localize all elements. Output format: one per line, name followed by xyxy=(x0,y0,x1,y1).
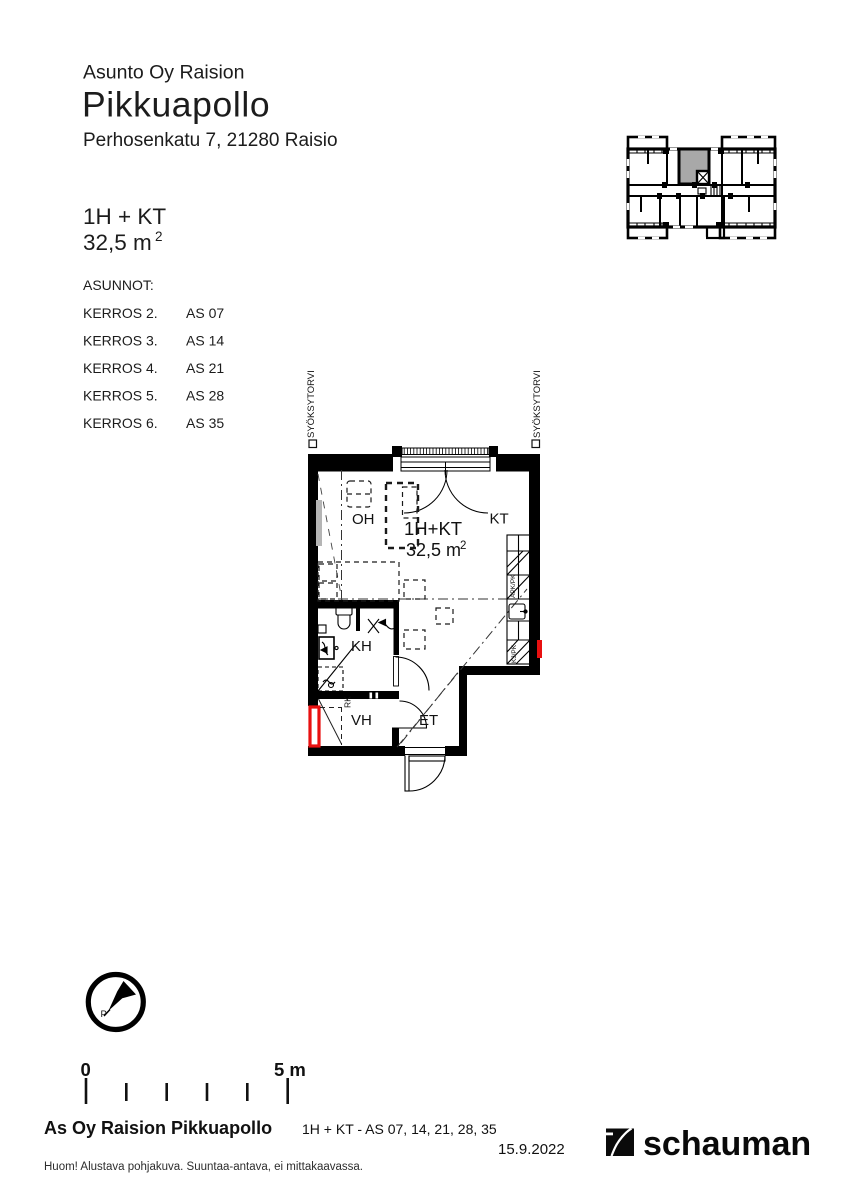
svg-text:OH: OH xyxy=(352,511,375,528)
svg-text:AS 14: AS 14 xyxy=(186,333,224,349)
svg-text:SYÖKSYTORVI: SYÖKSYTORVI xyxy=(306,370,317,438)
svg-text:32,5 m: 32,5 m xyxy=(406,540,461,560)
svg-text:AS 21: AS 21 xyxy=(186,360,224,376)
svg-text:KERROS 2.: KERROS 2. xyxy=(83,305,158,321)
svg-text:5 m: 5 m xyxy=(274,1059,306,1080)
svg-text:Perhosenkatu 7, 21280 Raisio: Perhosenkatu 7, 21280 Raisio xyxy=(83,130,338,151)
svg-text:0: 0 xyxy=(81,1059,91,1080)
svg-text:ASUNNOT:: ASUNNOT: xyxy=(83,277,154,293)
svg-text:KERROS 4.: KERROS 4. xyxy=(83,360,158,376)
svg-text:2: 2 xyxy=(460,540,466,552)
svg-text:32,5 m: 32,5 m xyxy=(83,230,152,255)
svg-text:KJ/PK: KJ/PK xyxy=(511,644,518,663)
svg-text:RK: RK xyxy=(343,696,353,708)
svg-text:SYÖKSYTORVI: SYÖKSYTORVI xyxy=(532,370,543,438)
svg-text:KERROS 3.: KERROS 3. xyxy=(83,333,158,349)
svg-text:ET: ET xyxy=(419,712,438,729)
svg-text:1H + KT: 1H + KT xyxy=(83,204,166,229)
svg-text:schauman: schauman xyxy=(643,1125,811,1163)
svg-text:Huom! Alustava pohjakuva. Suun: Huom! Alustava pohjakuva. Suuntaa-antava… xyxy=(44,1161,363,1173)
svg-text:2: 2 xyxy=(155,229,163,244)
svg-text:VH: VH xyxy=(351,712,372,729)
svg-text:APK/PK: APK/PK xyxy=(510,574,517,598)
svg-text:AS 35: AS 35 xyxy=(186,415,224,431)
svg-text:1H + KT - AS 07, 14, 21, 28, 3: 1H + KT - AS 07, 14, 21, 28, 35 xyxy=(302,1121,497,1137)
svg-text:15.9.2022: 15.9.2022 xyxy=(498,1141,565,1158)
svg-text:KT: KT xyxy=(490,511,509,528)
svg-text:KH: KH xyxy=(351,638,372,655)
svg-text:Pikkuapollo: Pikkuapollo xyxy=(82,85,270,125)
svg-text:AS 07: AS 07 xyxy=(186,305,224,321)
svg-text:As Oy Raision Pikkuapollo: As Oy Raision Pikkuapollo xyxy=(44,1118,272,1138)
svg-text:Asunto Oy Raision: Asunto Oy Raision xyxy=(83,62,245,84)
svg-text:P: P xyxy=(101,1009,107,1020)
svg-text:KERROS 5.: KERROS 5. xyxy=(83,388,158,404)
svg-text:AS 28: AS 28 xyxy=(186,388,224,404)
svg-text:KERROS 6.: KERROS 6. xyxy=(83,415,158,431)
svg-text:1H+KT: 1H+KT xyxy=(404,518,462,539)
